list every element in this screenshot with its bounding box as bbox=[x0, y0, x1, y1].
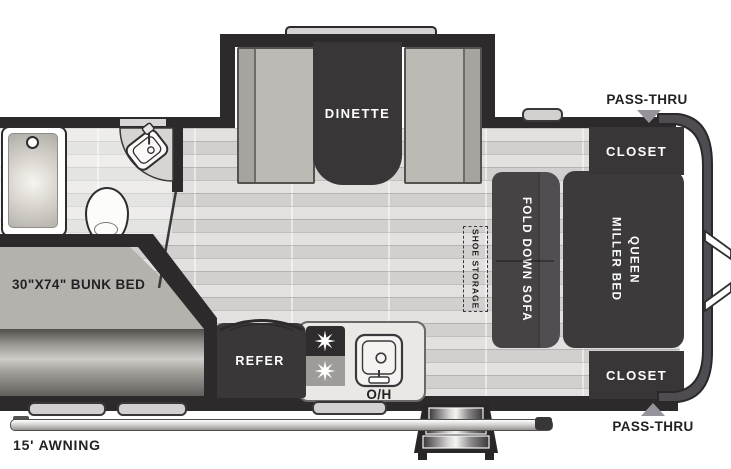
window-bottom-3 bbox=[312, 401, 387, 415]
awning-label: 15' AWNING bbox=[13, 437, 101, 453]
floorplan-canvas: DINETTE 30"X74" BUNK BED REFER SHOE STOR… bbox=[0, 0, 731, 469]
faucet-icon bbox=[369, 377, 389, 383]
pass-thru-arrow-top bbox=[637, 110, 661, 123]
window-bottom-2 bbox=[117, 402, 187, 416]
pass-thru-label-bottom: PASS-THRU bbox=[610, 419, 696, 434]
window-bottom-1 bbox=[28, 402, 106, 416]
burner-icon bbox=[315, 361, 336, 382]
wall-diagonal-partition bbox=[138, 234, 217, 411]
burner-icon bbox=[315, 331, 336, 352]
front-cap bbox=[658, 114, 712, 402]
pass-thru-label-top: PASS-THRU bbox=[604, 92, 690, 107]
entry-steps bbox=[414, 404, 498, 460]
awning-bar bbox=[10, 419, 553, 431]
pass-thru-arrow-bottom bbox=[641, 403, 665, 416]
awning-right-cap bbox=[535, 417, 552, 430]
overhead-cabinet-label: O/H bbox=[352, 387, 406, 402]
kitchen-sink bbox=[356, 335, 402, 386]
refrigerator-vent-inner bbox=[230, 324, 293, 330]
